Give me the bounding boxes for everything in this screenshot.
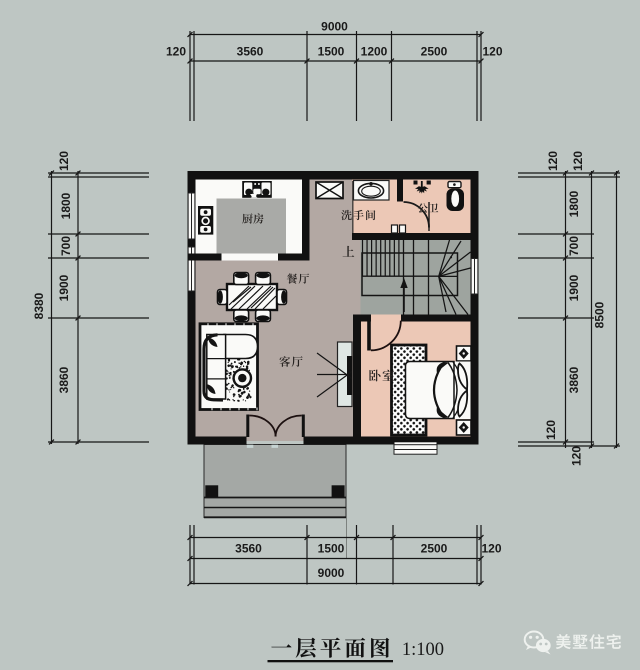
svg-text:3860: 3860 [567, 366, 581, 393]
svg-text:120: 120 [544, 420, 558, 440]
svg-text:9000: 9000 [321, 20, 348, 34]
svg-text:120: 120 [570, 446, 584, 466]
svg-text:1200: 1200 [361, 45, 388, 59]
svg-text:1800: 1800 [59, 192, 73, 219]
svg-text:1800: 1800 [567, 190, 581, 217]
svg-text:120: 120 [166, 45, 186, 59]
svg-text:1900: 1900 [57, 274, 71, 301]
svg-text:120: 120 [482, 45, 502, 59]
svg-text:120: 120 [546, 151, 560, 171]
svg-text:1:100: 1:100 [402, 640, 444, 660]
svg-text:1500: 1500 [318, 542, 345, 556]
svg-text:1900: 1900 [567, 274, 581, 301]
svg-text:8380: 8380 [32, 292, 46, 319]
svg-text:1500: 1500 [318, 45, 345, 59]
svg-text:9000: 9000 [318, 566, 345, 580]
svg-text:700: 700 [59, 236, 73, 256]
svg-text:2500: 2500 [421, 542, 448, 556]
svg-text:3860: 3860 [57, 366, 71, 393]
svg-text:2500: 2500 [421, 45, 448, 59]
svg-text:120: 120 [481, 542, 501, 556]
svg-text:120: 120 [571, 151, 585, 171]
svg-text:3560: 3560 [237, 45, 264, 59]
svg-text:3560: 3560 [235, 542, 262, 556]
svg-text:120: 120 [57, 151, 71, 171]
svg-text:700: 700 [567, 236, 581, 256]
svg-text:8500: 8500 [593, 301, 607, 328]
